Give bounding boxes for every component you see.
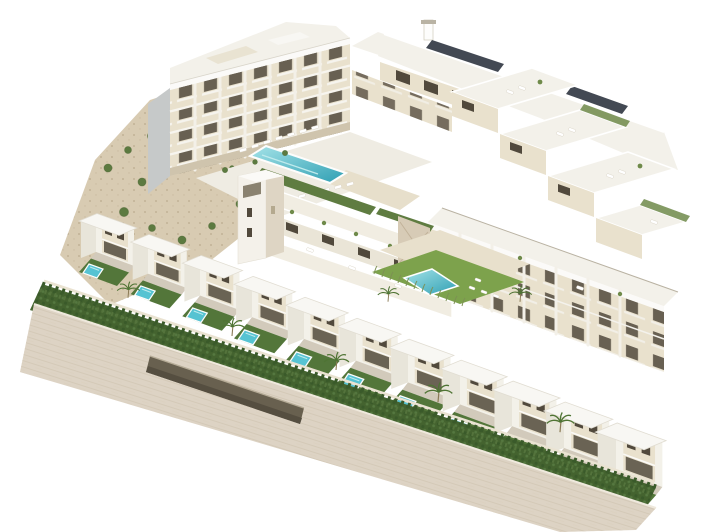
tower-slit-window [247,228,252,237]
development-render [0,0,703,532]
townhouse-unit [234,276,295,353]
chimney-cap [421,20,436,24]
tower-slit-window [271,206,275,214]
left-side-wall [148,88,170,194]
roof-terrace-step [596,199,690,259]
render-canvas [0,0,703,532]
elevator-tower [238,170,284,264]
tower-slit-window [247,208,252,217]
